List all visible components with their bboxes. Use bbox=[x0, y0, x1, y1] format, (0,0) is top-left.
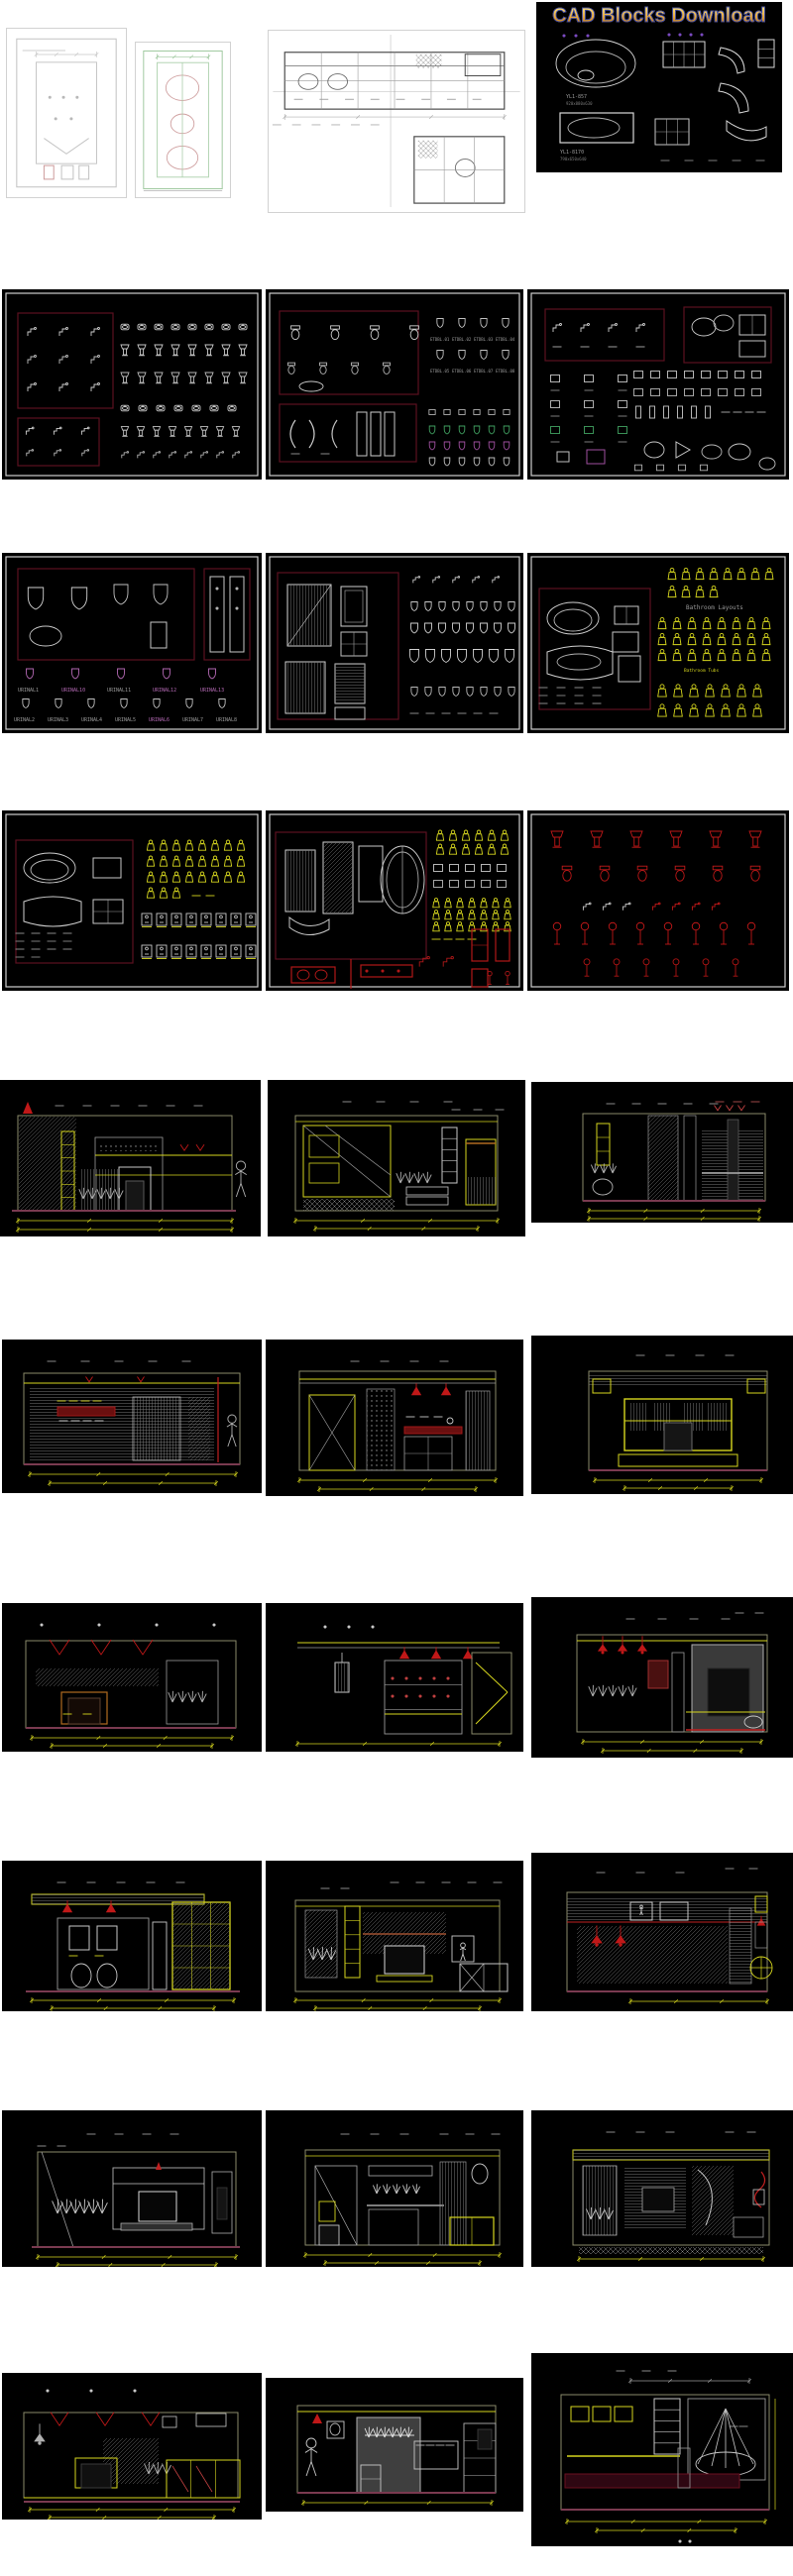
thumb-elevation-16-drawing bbox=[2, 2373, 262, 2520]
svg-text:ETDBL.04: ETDBL.04 bbox=[496, 337, 515, 342]
thumb-elevation-06[interactable] bbox=[531, 1336, 793, 1494]
thumb-cad-blocks-poster[interactable]: CAD Blocks DownloadYL1-857920x880x630YL1… bbox=[536, 2, 782, 172]
svg-text:ETDBL.05: ETDBL.05 bbox=[430, 369, 450, 374]
svg-text:920x880x630: 920x880x630 bbox=[566, 101, 593, 106]
thumb-elevation-08-drawing bbox=[266, 1603, 523, 1752]
svg-text:URINAL7: URINAL7 bbox=[182, 717, 203, 723]
thumb-elevation-10-drawing bbox=[2, 1861, 262, 2011]
svg-text:URINAL4: URINAL4 bbox=[81, 717, 102, 723]
thumb-elevation-16[interactable] bbox=[2, 2373, 262, 2520]
svg-text:ETDBL.03: ETDBL.03 bbox=[474, 337, 494, 342]
svg-text:URINAL1: URINAL1 bbox=[18, 688, 39, 694]
thumb-urinal-blocks[interactable]: URINAL1URINAL10URINAL11URINAL12URINAL13U… bbox=[2, 553, 262, 733]
thumb-red-sanitary-blocks[interactable] bbox=[527, 810, 789, 991]
thumb-shower-cabin-blocks-drawing bbox=[266, 553, 523, 733]
thumb-shower-fixture-blocks-drawing bbox=[266, 810, 523, 991]
thumb-red-sanitary-blocks-drawing bbox=[527, 810, 789, 991]
svg-text:ETDBL.01: ETDBL.01 bbox=[430, 337, 450, 342]
thumb-elevation-11[interactable] bbox=[266, 1861, 523, 2011]
svg-text:ETDBL.02: ETDBL.02 bbox=[452, 337, 472, 342]
thumb-elevation-04[interactable] bbox=[2, 1340, 262, 1493]
svg-text:URINAL8: URINAL8 bbox=[216, 717, 237, 723]
thumb-toilet-bidet-blocks-drawing: ETDBL.01ETDBL.02ETDBL.03ETDBL.04ETDBL.05… bbox=[266, 289, 523, 480]
thumb-faucet-sink-blocks[interactable] bbox=[2, 289, 262, 480]
svg-text:URINAL6: URINAL6 bbox=[149, 717, 170, 723]
thumb-elevation-04-drawing bbox=[2, 1340, 262, 1493]
svg-text:URINAL13: URINAL13 bbox=[200, 688, 224, 694]
thumb-shower-cabin-blocks[interactable] bbox=[266, 553, 523, 733]
svg-text:YL1-8170: YL1-8170 bbox=[560, 150, 584, 156]
thumb-elevation-15[interactable] bbox=[531, 2110, 793, 2267]
svg-text:URINAL2: URINAL2 bbox=[14, 717, 35, 723]
thumb-elevation-02-drawing bbox=[268, 1080, 525, 1236]
thumb-plan-grey-drawing bbox=[7, 29, 126, 197]
thumb-elevation-17[interactable] bbox=[266, 2378, 523, 2512]
thumb-elevation-12-drawing bbox=[531, 1853, 793, 2011]
thumb-elevation-18-drawing bbox=[531, 2353, 793, 2546]
thumb-bath-accessory-blocks-drawing bbox=[527, 289, 789, 480]
svg-text:790x650x640: 790x650x640 bbox=[560, 157, 587, 161]
thumb-floorplan-sheet[interactable] bbox=[268, 30, 525, 213]
thumb-elevation-09-drawing bbox=[531, 1597, 793, 1758]
thumb-elevation-15-drawing bbox=[531, 2110, 793, 2267]
thumb-elevation-05[interactable] bbox=[266, 1340, 523, 1496]
thumb-elevation-11-drawing bbox=[266, 1861, 523, 2011]
thumb-faucet-sink-blocks-drawing bbox=[2, 289, 262, 480]
thumb-elevation-03-drawing bbox=[531, 1082, 793, 1223]
thumb-plan-green[interactable] bbox=[135, 42, 231, 198]
thumb-elevation-10[interactable] bbox=[2, 1861, 262, 2011]
thumb-elevation-18[interactable] bbox=[531, 2353, 793, 2546]
thumb-elevation-07-drawing bbox=[2, 1603, 262, 1752]
thumb-toilet-bidet-blocks[interactable]: ETDBL.01ETDBL.02ETDBL.03ETDBL.04ETDBL.05… bbox=[266, 289, 523, 480]
thumb-elevation-14-drawing bbox=[266, 2110, 523, 2267]
thumb-elevation-03[interactable] bbox=[531, 1082, 793, 1223]
svg-text:URINAL11: URINAL11 bbox=[107, 688, 131, 694]
thumb-elevation-05-drawing bbox=[266, 1340, 523, 1496]
thumb-elevation-09[interactable] bbox=[531, 1597, 793, 1758]
svg-text:ETDBL.08: ETDBL.08 bbox=[496, 369, 515, 374]
svg-text:Bathroom Layouts: Bathroom Layouts bbox=[686, 604, 743, 611]
thumb-shower-fixture-blocks[interactable] bbox=[266, 810, 523, 991]
poster-title: CAD Blocks Download bbox=[536, 3, 782, 29]
cad-thumbnail-gallery: CAD Blocks DownloadYL1-857920x880x630YL1… bbox=[0, 0, 793, 2576]
thumb-bathtub-spec-blocks-drawing bbox=[2, 810, 262, 991]
thumb-bathtub-layout-blocks-drawing: Bathroom LayoutsBathroom Tubs bbox=[527, 553, 789, 733]
thumb-bathtub-spec-blocks[interactable] bbox=[2, 810, 262, 991]
thumb-floorplan-sheet-drawing bbox=[269, 31, 524, 212]
thumb-elevation-13-drawing bbox=[2, 2110, 262, 2267]
svg-text:URINAL3: URINAL3 bbox=[48, 717, 68, 723]
thumb-elevation-08[interactable] bbox=[266, 1603, 523, 1752]
thumb-elevation-07[interactable] bbox=[2, 1603, 262, 1752]
svg-text:Bathroom Tubs: Bathroom Tubs bbox=[684, 668, 720, 674]
thumb-elevation-12[interactable] bbox=[531, 1853, 793, 2011]
thumb-elevation-06-drawing bbox=[531, 1336, 793, 1494]
svg-text:ETDBL.07: ETDBL.07 bbox=[474, 369, 494, 374]
svg-text:URINAL12: URINAL12 bbox=[153, 688, 176, 694]
thumb-bath-accessory-blocks[interactable] bbox=[527, 289, 789, 480]
svg-text:YL1-857: YL1-857 bbox=[566, 94, 587, 100]
thumb-elevation-02[interactable] bbox=[268, 1080, 525, 1236]
thumb-plan-grey[interactable] bbox=[6, 28, 127, 198]
thumb-elevation-14[interactable] bbox=[266, 2110, 523, 2267]
svg-text:ETDBL.06: ETDBL.06 bbox=[452, 369, 472, 374]
thumb-bathtub-layout-blocks[interactable]: Bathroom LayoutsBathroom Tubs bbox=[527, 553, 789, 733]
svg-text:URINAL5: URINAL5 bbox=[115, 717, 136, 723]
thumb-elevation-01-drawing bbox=[0, 1080, 261, 1236]
thumb-plan-green-drawing bbox=[136, 43, 230, 197]
thumb-elevation-17-drawing bbox=[266, 2378, 523, 2512]
svg-text:URINAL10: URINAL10 bbox=[61, 688, 85, 694]
thumb-elevation-13[interactable] bbox=[2, 2110, 262, 2267]
thumb-urinal-blocks-drawing: URINAL1URINAL10URINAL11URINAL12URINAL13U… bbox=[2, 553, 262, 733]
thumb-elevation-01[interactable] bbox=[0, 1080, 261, 1236]
